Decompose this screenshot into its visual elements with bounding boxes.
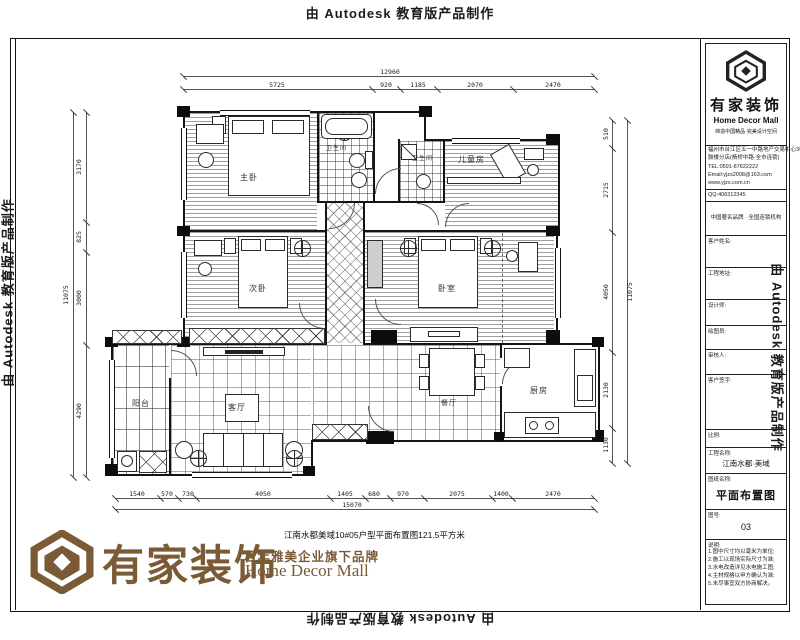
ceiling-fan-icon xyxy=(294,240,311,257)
kids-stool xyxy=(527,164,539,176)
wall xyxy=(558,139,560,233)
dim-bottom-seg: 680 xyxy=(362,490,386,498)
title-block-inner: 有家装饰 Home Decor Mall 缔造中国精品·完美设计空间 福州市台江… xyxy=(705,43,787,605)
dim-bottom-total: 15070 xyxy=(322,501,382,509)
row-label-address: 工程地址: xyxy=(708,269,732,277)
titleblock-contact: 福州市台江区五一中路地产交易中心3楼 鼓楼分店(杨桥中路·全市连锁) TEL:0… xyxy=(706,146,786,190)
pillow xyxy=(265,239,285,251)
burner xyxy=(529,421,538,430)
note-line-2: 2.施工以现场实际尺寸为准; xyxy=(708,557,775,565)
dim-bottom-seg: 2075 xyxy=(440,490,474,498)
titleblock-row-auditor: 审核人: xyxy=(706,350,786,375)
dim-top-seg: 920 xyxy=(372,81,400,89)
sink xyxy=(351,172,367,188)
number-label: 图号: xyxy=(708,511,721,519)
desk xyxy=(518,242,538,272)
wall xyxy=(443,139,445,203)
kids-cabinet xyxy=(447,177,521,184)
contact-qq: QQ:406312345 xyxy=(708,192,746,200)
pillow xyxy=(421,239,446,251)
sink xyxy=(416,174,431,189)
ceiling-fan-icon xyxy=(484,240,501,257)
dining-chair xyxy=(475,376,485,390)
dim-line xyxy=(86,112,87,477)
brand-hexagon-icon xyxy=(724,50,768,92)
cad-floorplan-sheet: { "watermark": "由 Autodesk 教育版产品制作", "lo… xyxy=(0,0,800,640)
titleblock-row-number: 图号: 03 xyxy=(706,510,786,540)
sofa xyxy=(203,433,283,467)
brand-name-en-large: Home Decor Mall xyxy=(245,561,369,581)
contact-web: www.yjzs.com.cn xyxy=(708,180,750,188)
dim-top-total: 12960 xyxy=(360,68,420,76)
dim-line xyxy=(183,76,594,77)
dim-bottom-seg: 1400 xyxy=(484,490,518,498)
downlight-icon xyxy=(190,450,207,467)
dresser xyxy=(196,124,224,144)
sheet-label: 图纸名称: xyxy=(708,475,732,483)
entry-threshold xyxy=(366,431,394,444)
dim-bottom-seg: 970 xyxy=(391,490,415,498)
note-line-5: 5.未尽事宜双方协商解决。 xyxy=(708,581,773,589)
room-label-bath1: 卫生间 xyxy=(326,143,347,152)
wall xyxy=(311,440,502,442)
door-arc xyxy=(375,168,401,194)
wall xyxy=(500,343,502,358)
pillow xyxy=(272,120,304,134)
dim-right-seg: 510 xyxy=(602,119,610,149)
row-label-signature: 客户签字: xyxy=(708,376,732,384)
room-label-bed2: 次卧 xyxy=(249,283,267,294)
column xyxy=(494,432,504,442)
wall xyxy=(325,201,327,345)
dim-line xyxy=(115,498,594,499)
room-label-dining: 餐厅 xyxy=(441,398,457,408)
titleblock-row-address: 工程地址: xyxy=(706,268,786,300)
nightstand xyxy=(224,238,236,254)
titleblock-row-signature: 客户签字: xyxy=(706,375,786,430)
dim-bottom-seg: 1405 xyxy=(330,490,360,498)
room-label-master: 主卧 xyxy=(240,172,258,183)
project-title-line: 江南水都美域10#05户型平面布置图121.5平方米 xyxy=(284,529,465,541)
pillow xyxy=(450,239,475,251)
wall xyxy=(363,201,365,345)
titleblock-notes: 说明: 1.图中尺寸均以毫米为单位; 2.施工以现场实际尺寸为准; 3.水电改造… xyxy=(706,540,786,602)
window xyxy=(452,138,520,144)
column xyxy=(546,134,560,145)
contact-address-1: 福州市台江区五一中路地产交易中心3楼 xyxy=(708,147,800,155)
tv-screen xyxy=(225,350,263,354)
balcony-cabinet xyxy=(139,451,167,473)
dim-line xyxy=(612,120,613,463)
dining-table xyxy=(429,348,475,396)
sheet-value: 平面布置图 xyxy=(706,487,786,503)
row-label-auditor: 审核人: xyxy=(708,351,726,359)
dresser xyxy=(194,240,222,256)
row-label-designer: 设计师: xyxy=(708,301,726,309)
note-line-3: 3.水电改造详见水电施工图; xyxy=(708,565,775,573)
dim-left-seg: 3000 xyxy=(75,283,83,313)
title-block: 有家装饰 Home Decor Mall 缔造中国精品·完美设计空间 福州市台江… xyxy=(700,38,790,610)
kids-desk xyxy=(524,148,544,160)
brand-name-cn: 有家装饰 xyxy=(706,94,786,115)
column xyxy=(371,330,397,344)
dim-right-seg: 2715 xyxy=(602,175,610,205)
window xyxy=(181,128,187,200)
stool xyxy=(198,152,214,168)
titleblock-qq-row: QQ:406312345 xyxy=(706,190,786,202)
titleblock-row-drafter: 绘图员: xyxy=(706,326,786,350)
column xyxy=(546,226,560,236)
column xyxy=(177,226,190,236)
stool xyxy=(198,262,212,276)
room-label-balcony: 阳台 xyxy=(132,398,150,409)
note-line-1: 1.图中尺寸均以毫米为单位; xyxy=(708,549,775,557)
pillow xyxy=(232,120,264,134)
titleblock-row-sheet: 图纸名称: 平面布置图 xyxy=(706,474,786,510)
titleblock-row-designer: 设计师: xyxy=(706,300,786,326)
window xyxy=(181,252,187,318)
wall xyxy=(317,111,319,203)
cabinet-drawer xyxy=(428,331,460,337)
dim-line xyxy=(115,509,594,510)
column xyxy=(177,106,190,117)
dim-right-seg: 2130 xyxy=(602,375,610,405)
wall xyxy=(169,378,171,476)
brand-row-text: 中国著名品牌 · 全国连锁机构 xyxy=(706,215,786,223)
wall xyxy=(363,343,600,345)
downlight-icon xyxy=(286,450,303,467)
pillow xyxy=(241,239,261,251)
wall xyxy=(363,230,558,232)
wall xyxy=(183,230,327,232)
column xyxy=(303,466,315,476)
number-value: 03 xyxy=(706,522,786,532)
dim-bottom-seg: 1540 xyxy=(122,490,152,498)
contact-tel: TEL:0591-87622222 xyxy=(708,164,758,172)
wardrobe-side xyxy=(367,240,383,288)
row-label-client: 客户姓名: xyxy=(708,237,732,245)
dim-bottom-seg: 2470 xyxy=(536,490,570,498)
column xyxy=(592,337,604,347)
brand-logo-block: 有家装饰 百年雅美企业旗下品牌 Home Decor Mall 江南水都美域10… xyxy=(22,520,482,610)
window xyxy=(555,248,561,318)
dim-top-seg: 2070 xyxy=(461,81,489,89)
titleblock-row-client: 客户姓名: xyxy=(706,236,786,268)
door-arc xyxy=(417,203,439,225)
titleblock-brand-row: 中国著名品牌 · 全国连锁机构 xyxy=(706,202,786,236)
window xyxy=(192,472,292,478)
column xyxy=(546,330,560,344)
fridge xyxy=(504,348,530,368)
toilet-tank xyxy=(365,151,373,169)
brand-tagline: 缔造中国精品·完美设计空间 xyxy=(706,128,786,135)
dim-left-seg: 825 xyxy=(75,222,83,252)
dim-top-seg: 5725 xyxy=(253,81,301,89)
dim-left-total: 11075 xyxy=(62,280,70,310)
dining-chair xyxy=(419,376,429,390)
note-line-4: 4.主材规格以甲方确认为准; xyxy=(708,573,775,581)
project-value: 江南水都·美域 xyxy=(706,458,786,469)
dim-right-seg: 4050 xyxy=(602,277,610,307)
planter-box xyxy=(112,330,182,344)
dining-chair xyxy=(475,354,485,368)
bathtub-inner xyxy=(325,118,368,135)
row-label-scale: 比例: xyxy=(708,431,721,439)
notes-label: 说明: xyxy=(708,541,721,549)
room-label-bath2: 卫生间 xyxy=(412,153,433,162)
shoe-cabinet xyxy=(312,424,368,440)
wall xyxy=(500,440,600,442)
titleblock-logo-section: 有家装饰 Home Decor Mall 缔造中国精品·完美设计空间 xyxy=(706,44,786,146)
kitchen-sink xyxy=(577,375,593,401)
desk-chair xyxy=(506,250,518,262)
row-label-drafter: 绘图员: xyxy=(708,327,726,335)
dim-left-seg: 3170 xyxy=(75,152,83,182)
project-label: 工程名称: xyxy=(708,449,732,457)
column xyxy=(419,106,432,117)
dim-line xyxy=(183,89,594,90)
contact-address-2: 鼓楼分店(杨桥中路·全市连锁) xyxy=(708,155,780,163)
dim-right-total: 11075 xyxy=(626,277,634,307)
window xyxy=(109,360,115,458)
burner xyxy=(545,421,554,430)
brand-name-en: Home Decor Mall xyxy=(706,116,786,125)
room-label-kids: 儿童房 xyxy=(458,154,485,165)
dining-chair xyxy=(419,354,429,368)
room-label-kitchen: 厨房 xyxy=(530,385,548,396)
dim-top-seg: 1185 xyxy=(404,81,432,89)
toilet-bowl xyxy=(349,153,365,168)
room-label-living: 客厅 xyxy=(228,402,246,413)
washer-drum xyxy=(121,455,133,467)
wall xyxy=(598,343,600,442)
room-label-bed3: 卧室 xyxy=(438,283,456,294)
brand-hexagon-icon xyxy=(28,530,96,594)
area-divider-dashed xyxy=(502,233,503,343)
ceiling-fan-icon xyxy=(400,240,417,257)
titleblock-row-project: 工程名称: 江南水都·美域 xyxy=(706,448,786,474)
titleblock-row-scale: 比例: xyxy=(706,430,786,448)
dim-left-seg: 4290 xyxy=(75,396,83,426)
dim-top-seg: 2470 xyxy=(539,81,567,89)
dim-bottom-seg: 4050 xyxy=(244,490,282,498)
dim-bottom-seg: 730 xyxy=(176,490,200,498)
wardrobe xyxy=(189,328,325,344)
dim-line xyxy=(73,112,74,477)
dim-right-seg: 1130 xyxy=(602,430,610,460)
contact-email: Email:yjzs2008@163.com xyxy=(708,172,772,180)
